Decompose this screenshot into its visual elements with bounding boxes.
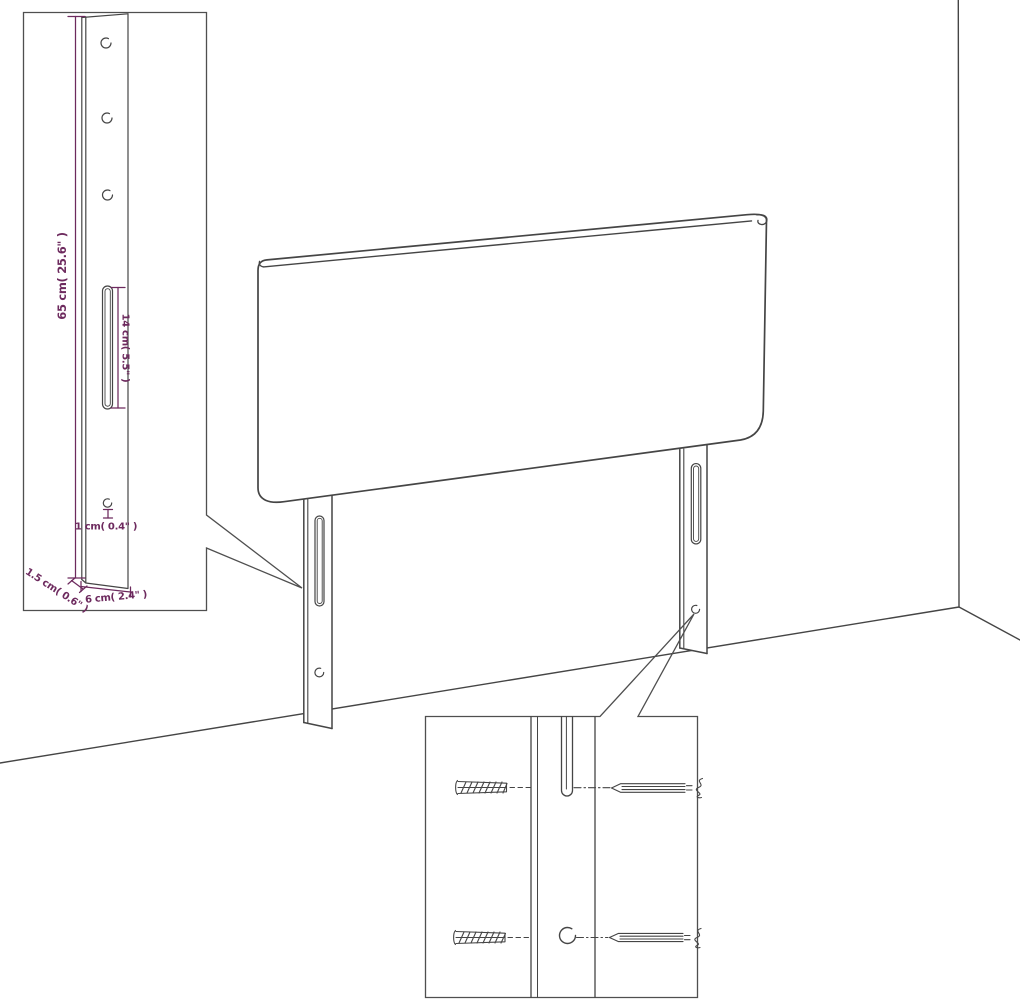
slot-dimension-label: 14 cm( 5.5" ) bbox=[120, 314, 131, 383]
hole-dimension-label: 1 cm( 0.4" ) bbox=[75, 522, 137, 533]
plug-top-flange bbox=[456, 781, 458, 795]
detail-leg-hole-3 bbox=[103, 190, 113, 200]
detail-leg-small-hole bbox=[103, 499, 111, 507]
headboard-left-leg bbox=[304, 493, 332, 729]
wall-plug-bottom bbox=[454, 931, 529, 945]
screw-bottom-body bbox=[610, 933, 684, 941]
hardware-leg-strip bbox=[531, 717, 595, 998]
wall-plug-top bbox=[456, 781, 531, 795]
diagram-canvas: 65 cm( 25.6" ) 14 cm( 5.5" ) 1 cm( 0.4" … bbox=[0, 0, 1020, 1004]
width-dimension-label: 6 cm( 2.4" ) bbox=[85, 589, 148, 605]
strip-slot bbox=[562, 717, 573, 796]
detail-leg-hole-1 bbox=[101, 38, 111, 48]
detail-leg bbox=[82, 14, 128, 589]
height-dimension-label: 65 cm( 25.6" ) bbox=[55, 232, 69, 320]
headboard-right-leg bbox=[680, 446, 707, 654]
screw-top bbox=[574, 779, 703, 798]
plug-bottom-flange bbox=[454, 931, 456, 945]
floor-line-right bbox=[959, 607, 1020, 640]
screw-top-body bbox=[612, 784, 686, 793]
headboard-assembly-diagram: 65 cm( 25.6" ) 14 cm( 5.5" ) 1 cm( 0.4" … bbox=[0, 0, 1020, 1004]
detail-leg-slot bbox=[103, 286, 113, 409]
screw-bottom-end-dashes bbox=[685, 936, 691, 940]
wall-corner-line bbox=[958, 0, 959, 607]
detail-leg-hole-2 bbox=[102, 113, 112, 123]
screw-top-end-dashes bbox=[687, 786, 693, 790]
detail-leg-top-edge bbox=[82, 14, 128, 18]
strip-mount-hole bbox=[560, 928, 576, 944]
detail-leg-slot-inner bbox=[105, 289, 110, 407]
floor-line-left bbox=[0, 607, 959, 763]
dimension-marks bbox=[68, 17, 131, 598]
thickness-dimension-label: 1.5 cm( 0.6" ) bbox=[23, 567, 90, 616]
